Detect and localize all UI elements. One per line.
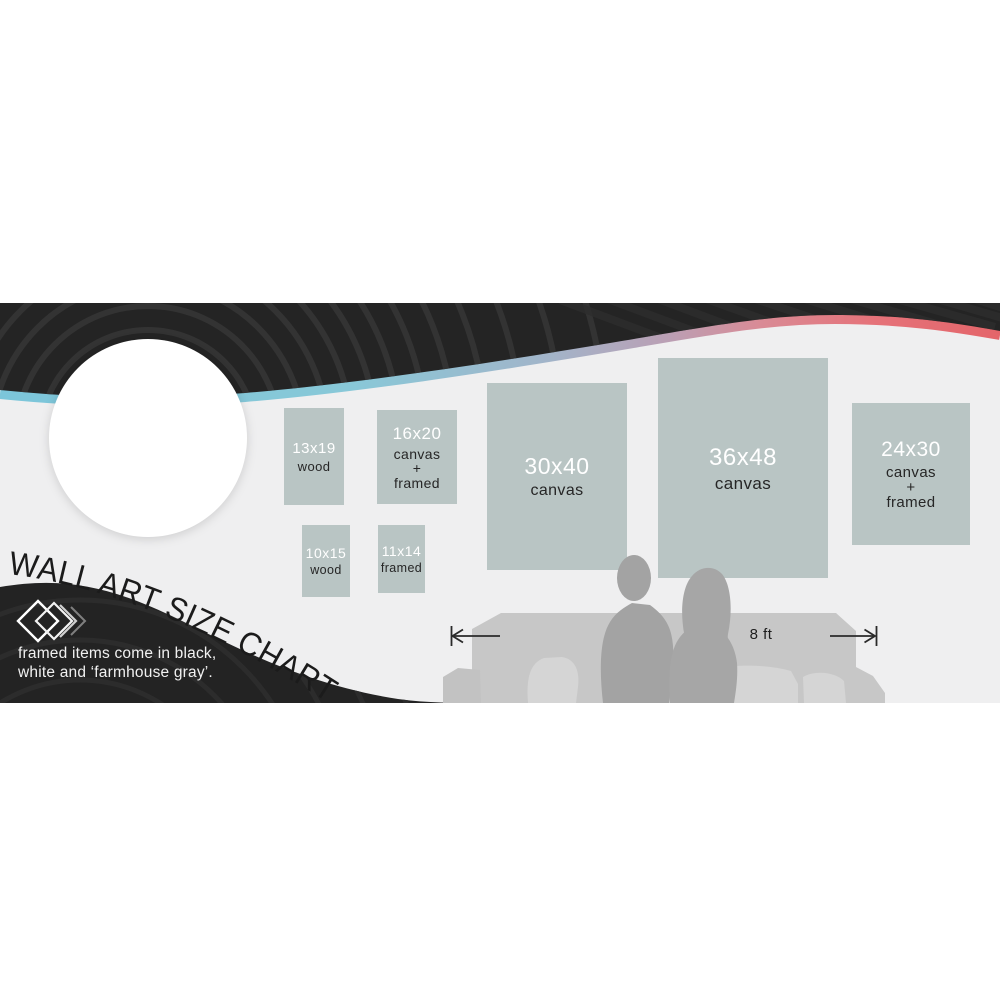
scene-foreground [0,0,1000,1000]
measurement-label: 8 ft [741,626,781,643]
man-silhouette [601,555,674,703]
ottoman-silhouette [443,668,481,703]
wall-art-size-chart-banner: WALL ART SIZE CHART 13x19 wood 16x20 can… [0,0,1000,1000]
